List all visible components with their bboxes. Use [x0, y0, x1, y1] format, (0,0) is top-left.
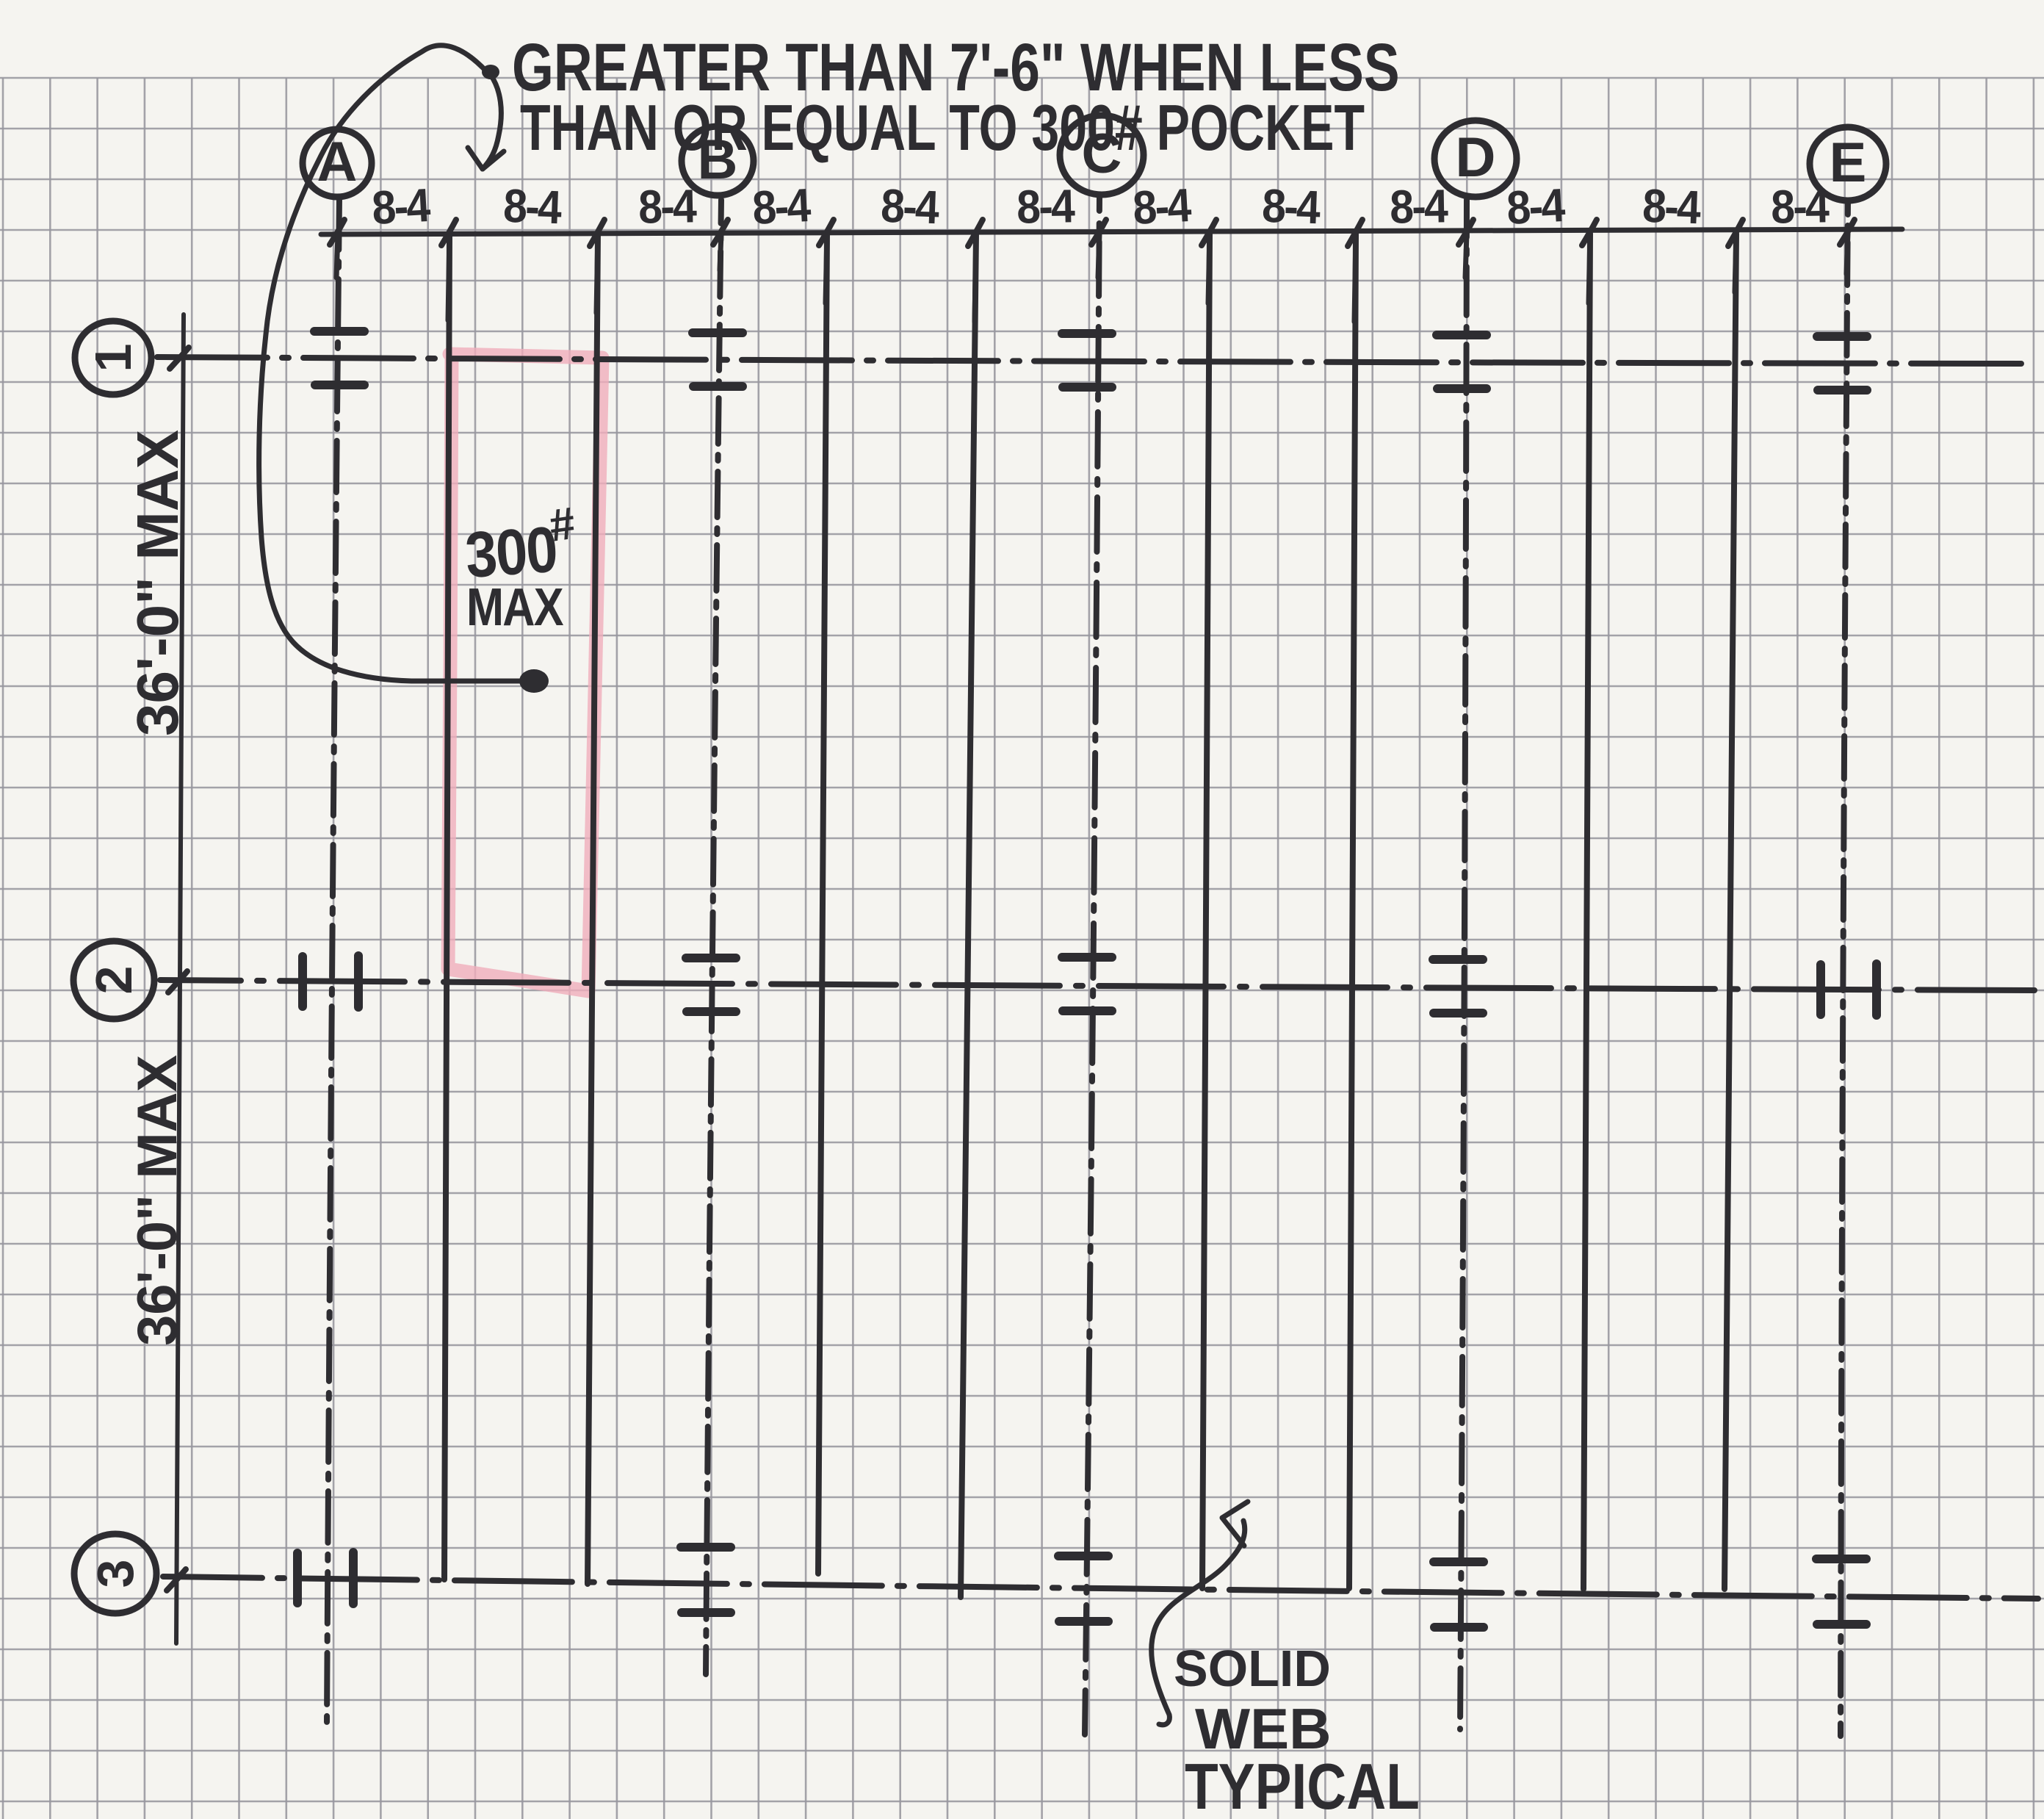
- svg-text:2: 2: [85, 966, 142, 995]
- svg-text:8-4: 8-4: [1132, 179, 1193, 235]
- svg-text:8-4: 8-4: [371, 179, 432, 235]
- svg-text:A: A: [317, 131, 358, 193]
- svg-text:8-4: 8-4: [638, 180, 698, 234]
- svg-text:8-4: 8-4: [1642, 179, 1702, 234]
- svg-text:36'-0" MAX: 36'-0" MAX: [125, 430, 190, 736]
- svg-text:8-4: 8-4: [1261, 179, 1321, 234]
- svg-text:8-4: 8-4: [880, 179, 940, 234]
- svg-text:8-4: 8-4: [1016, 180, 1076, 234]
- svg-text:SOLID: SOLID: [1174, 1640, 1331, 1697]
- svg-text:TYPICAL: TYPICAL: [1185, 1751, 1420, 1819]
- svg-text:D: D: [1456, 126, 1496, 189]
- svg-text:8-4: 8-4: [1506, 179, 1567, 235]
- svg-text:3: 3: [87, 1560, 144, 1588]
- svg-text:36'-0" MAX: 36'-0" MAX: [126, 1054, 189, 1346]
- svg-text:8-4: 8-4: [1390, 180, 1449, 234]
- svg-text:1: 1: [84, 344, 142, 372]
- svg-text:E: E: [1830, 132, 1867, 194]
- svg-text:8-4: 8-4: [751, 179, 812, 235]
- svg-text:MAX: MAX: [466, 578, 563, 637]
- svg-text:8-4: 8-4: [502, 179, 563, 234]
- svg-text:THAN OR EQUAL TO 300# POCKET: THAN OR EQUAL TO 300# POCKET: [520, 92, 1365, 164]
